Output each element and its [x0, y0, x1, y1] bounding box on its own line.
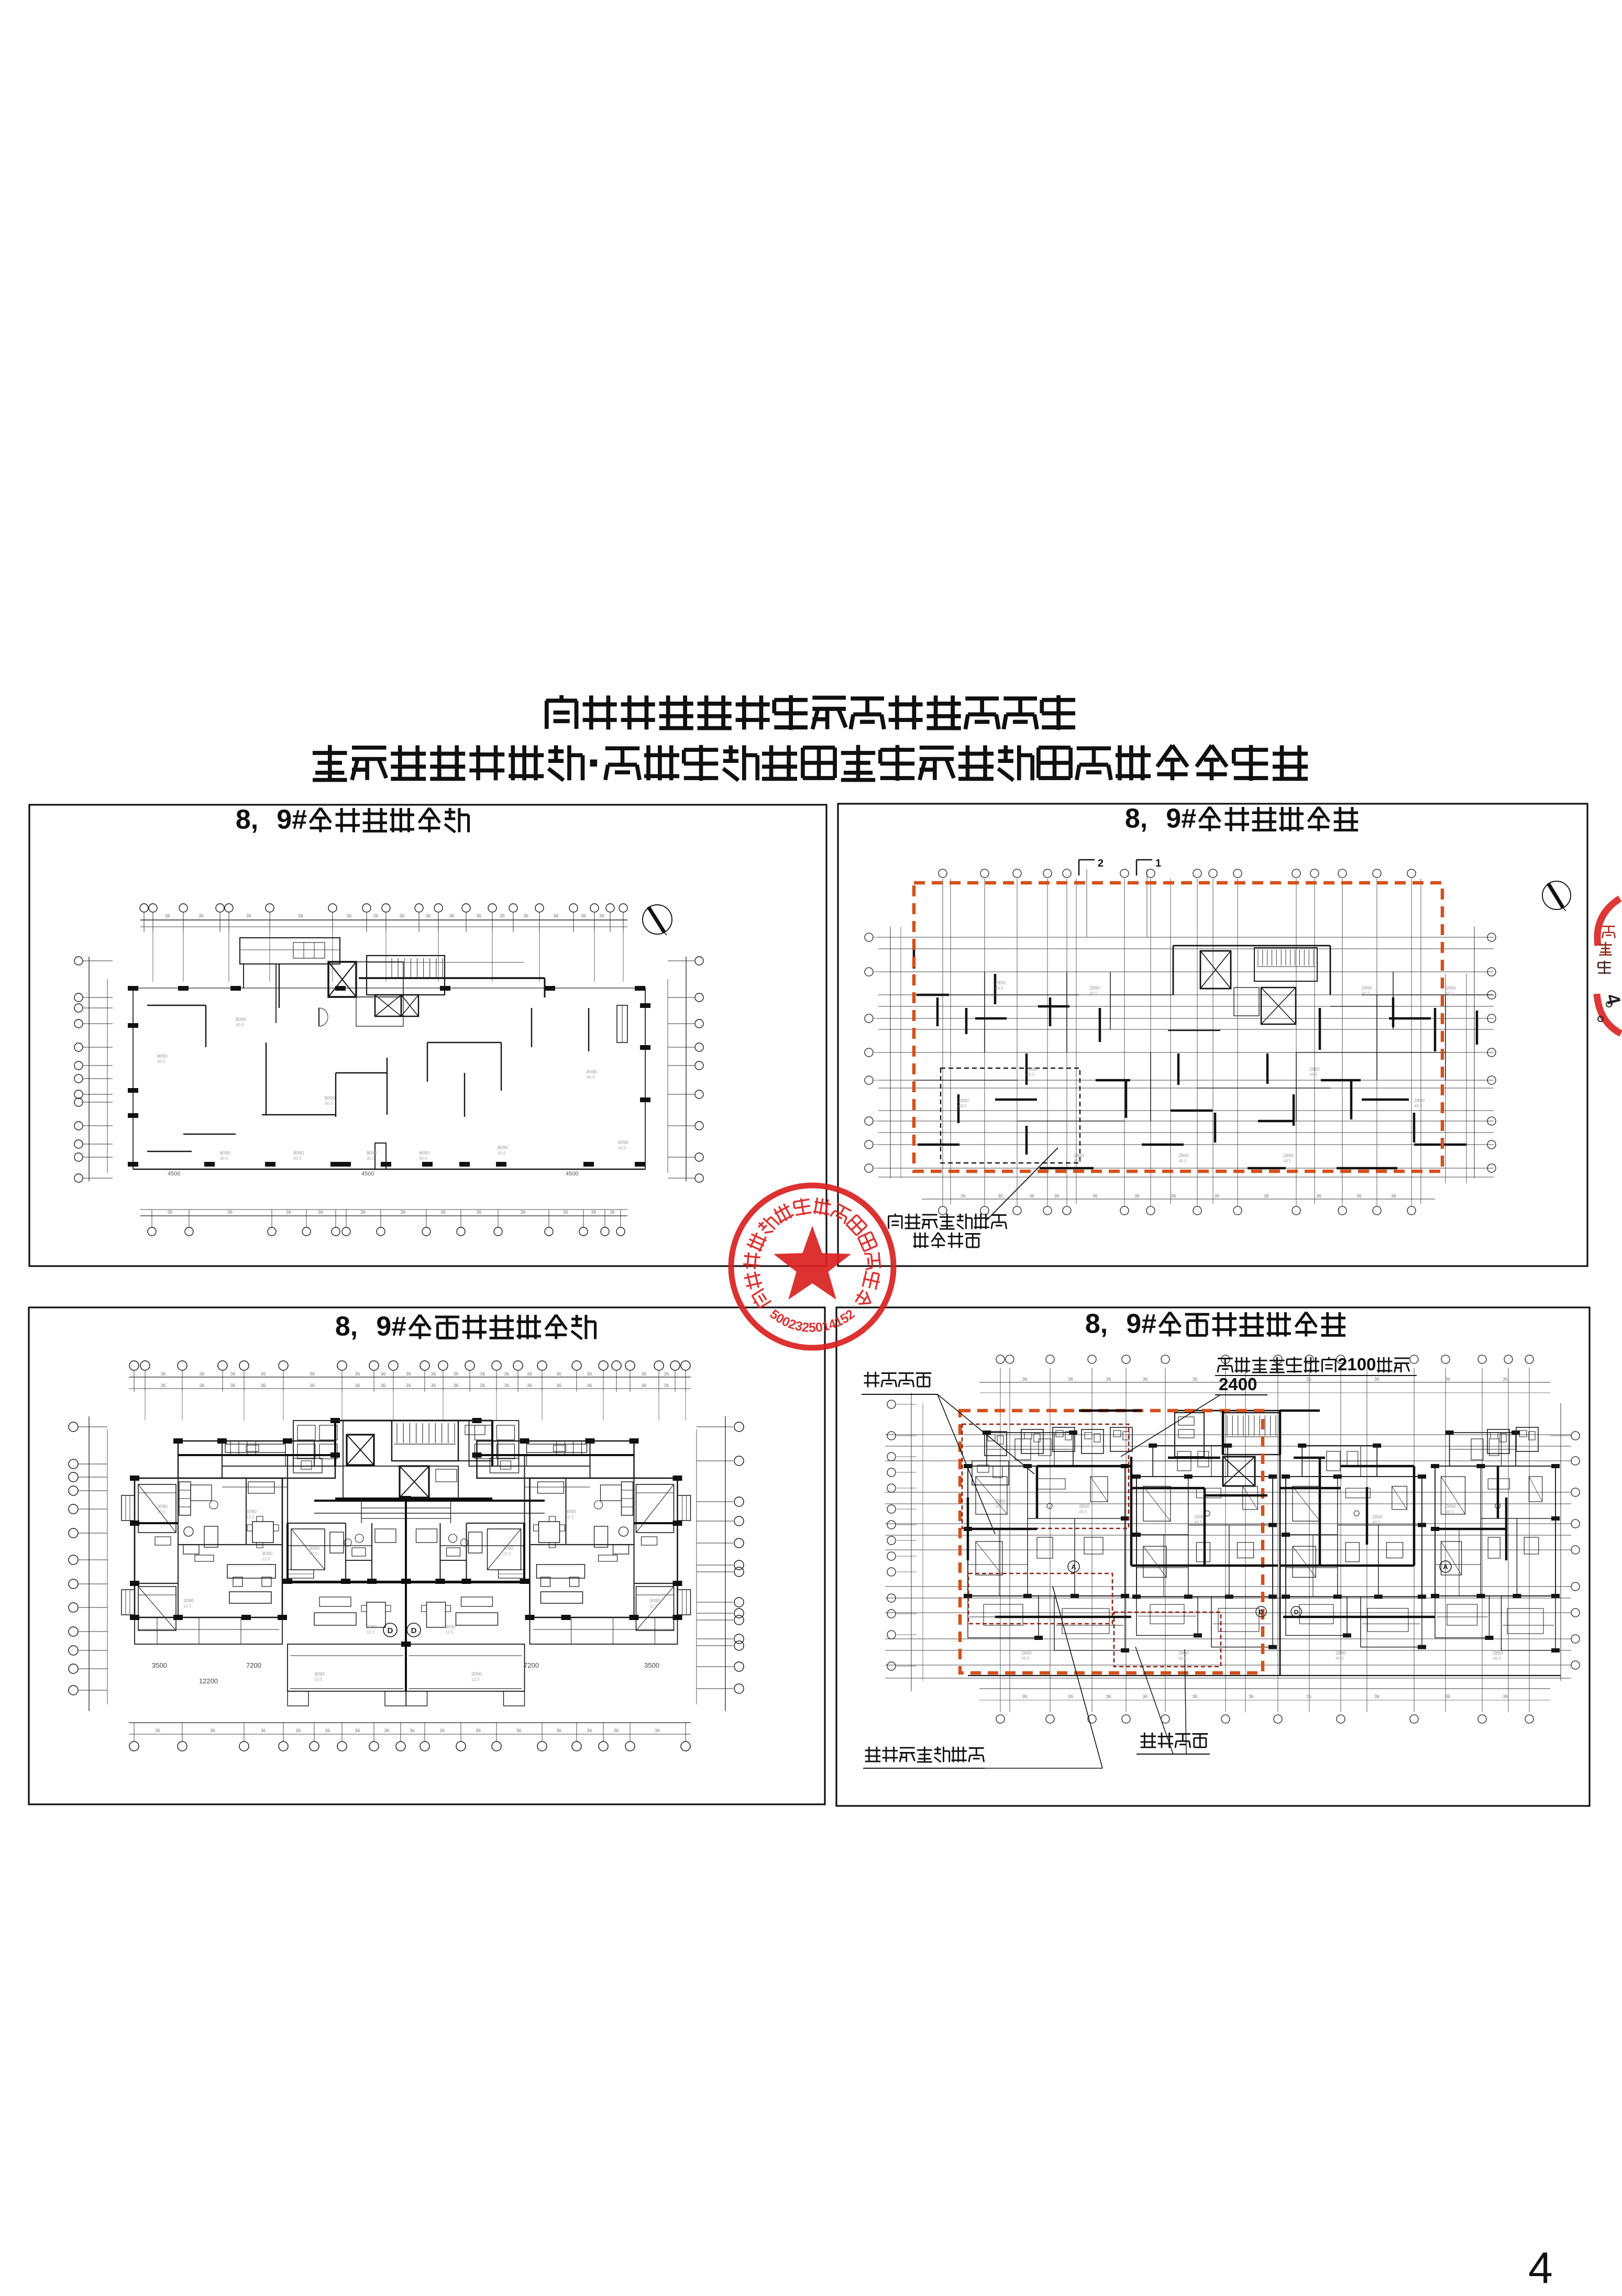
svg-text:2890: 2890: [1493, 1650, 1503, 1656]
svg-text:12.5: 12.5: [157, 1510, 165, 1514]
svg-text:8090: 8090: [419, 1150, 429, 1156]
svg-text:36: 36: [554, 913, 559, 918]
svg-text:36: 36: [1022, 1377, 1028, 1382]
svg-text:40.0: 40.0: [498, 1151, 506, 1156]
svg-text:2890: 2890: [958, 1098, 969, 1103]
svg-text:2890: 2890: [1414, 1098, 1425, 1103]
svg-text:36: 36: [1143, 1694, 1148, 1699]
svg-text:36: 36: [1093, 1193, 1098, 1199]
svg-text:36: 36: [454, 1383, 459, 1388]
svg-text:49.5: 49.5: [1194, 1520, 1202, 1525]
svg-text:3090: 3090: [471, 1671, 482, 1677]
svg-text:36: 36: [261, 1728, 266, 1733]
svg-text:8090: 8090: [618, 1140, 628, 1145]
svg-text:2: 2: [1338, 1355, 1347, 1374]
svg-text:4: 4: [1528, 2243, 1553, 2292]
svg-text:36: 36: [610, 1210, 615, 1215]
svg-text:3090: 3090: [649, 1598, 660, 1603]
svg-text:40.0: 40.0: [236, 1023, 244, 1027]
svg-text:40.0: 40.0: [419, 1156, 427, 1161]
svg-text:36: 36: [527, 1371, 532, 1377]
svg-text:12.5: 12.5: [262, 1557, 270, 1561]
svg-text:3090: 3090: [246, 1509, 257, 1514]
svg-text:36: 36: [1134, 1193, 1140, 1199]
svg-text:36: 36: [556, 1383, 561, 1388]
svg-text:36: 36: [521, 1210, 526, 1215]
svg-text:3090: 3090: [314, 1671, 325, 1677]
svg-text:0: 0: [1366, 1355, 1376, 1374]
svg-text:36: 36: [516, 1728, 522, 1733]
svg-text:A: A: [1443, 1563, 1448, 1571]
svg-text:36: 36: [556, 1371, 561, 1377]
svg-text:40.0: 40.0: [325, 1101, 333, 1106]
svg-text:8090: 8090: [220, 1150, 230, 1156]
svg-text:49.5: 49.5: [958, 1104, 967, 1108]
svg-text:36: 36: [664, 1383, 669, 1388]
svg-text:2890: 2890: [1309, 1067, 1320, 1072]
svg-text:36: 36: [1068, 1694, 1073, 1699]
svg-text:36: 36: [431, 1383, 436, 1388]
svg-text:12.5: 12.5: [183, 1604, 192, 1609]
svg-text:0: 0: [1248, 1374, 1257, 1394]
svg-text:#: #: [391, 1312, 406, 1342]
svg-text:2890: 2890: [1027, 1067, 1037, 1072]
svg-text:36: 36: [1106, 1377, 1111, 1382]
svg-text:3500: 3500: [152, 1661, 167, 1669]
svg-text:2: 2: [1219, 1374, 1228, 1394]
svg-text:49.5: 49.5: [1493, 1656, 1501, 1661]
svg-text:,: ,: [251, 805, 258, 835]
svg-text:2890: 2890: [1178, 1153, 1189, 1158]
svg-text:49.5: 49.5: [1074, 1159, 1082, 1163]
svg-text:36: 36: [1171, 1193, 1176, 1199]
svg-text:8: 8: [1085, 1309, 1100, 1339]
svg-text:12.5: 12.5: [471, 1677, 480, 1682]
svg-text:8090: 8090: [293, 1150, 304, 1156]
svg-text:36: 36: [587, 1383, 592, 1388]
svg-text:36: 36: [426, 913, 431, 918]
svg-text:36: 36: [230, 1383, 236, 1388]
svg-text:36: 36: [1022, 1694, 1028, 1699]
svg-text:36: 36: [310, 1371, 315, 1377]
svg-text:49.5: 49.5: [1021, 1656, 1030, 1661]
svg-text:8: 8: [335, 1312, 350, 1342]
svg-text:12.5: 12.5: [314, 1677, 323, 1682]
svg-text:49.5: 49.5: [1079, 1510, 1087, 1514]
svg-text:36: 36: [1068, 1377, 1073, 1382]
svg-text:36: 36: [1264, 1193, 1269, 1199]
svg-text:49.5: 49.5: [995, 1504, 1003, 1509]
svg-text:36: 36: [406, 1371, 411, 1377]
svg-text:49.5: 49.5: [1309, 1072, 1318, 1077]
svg-text:36: 36: [410, 1728, 415, 1733]
svg-text:36: 36: [1503, 1377, 1508, 1382]
svg-text:7200: 7200: [246, 1661, 261, 1669]
svg-text:36: 36: [355, 1371, 360, 1377]
svg-text:#: #: [1141, 1309, 1156, 1339]
svg-text:49.5: 49.5: [1372, 1520, 1381, 1525]
svg-text:36: 36: [360, 1210, 366, 1215]
svg-text:36: 36: [230, 1371, 236, 1377]
svg-text:12.5: 12.5: [649, 1604, 658, 1609]
svg-text:36: 36: [381, 1383, 386, 1388]
svg-text:36: 36: [261, 1371, 266, 1377]
svg-text:8090: 8090: [325, 1095, 335, 1101]
svg-text:36: 36: [1445, 1694, 1450, 1699]
svg-text:2890: 2890: [1372, 1514, 1383, 1519]
svg-text:,: ,: [1100, 1309, 1108, 1339]
svg-text:36: 36: [198, 913, 204, 918]
svg-text:36: 36: [527, 1383, 532, 1388]
svg-text:,: ,: [1140, 804, 1147, 834]
svg-text:36: 36: [642, 1371, 647, 1377]
svg-text:36: 36: [210, 1728, 215, 1733]
svg-text:36: 36: [1374, 1694, 1380, 1699]
svg-text:4: 4: [1228, 1374, 1238, 1394]
svg-text:2: 2: [1098, 858, 1104, 869]
svg-text:36: 36: [1249, 1694, 1254, 1699]
svg-text:49.5: 49.5: [1178, 1656, 1187, 1661]
svg-text:36: 36: [384, 1728, 390, 1733]
svg-text:40.0: 40.0: [618, 1146, 626, 1150]
svg-text:36: 36: [401, 1210, 406, 1215]
svg-text:2890: 2890: [995, 1499, 1006, 1504]
svg-text:36: 36: [664, 1371, 669, 1377]
svg-text:4500: 4500: [168, 1171, 180, 1177]
svg-text:0: 0: [1238, 1374, 1248, 1394]
svg-text:8090: 8090: [587, 1069, 597, 1074]
svg-text:36: 36: [355, 1728, 360, 1733]
svg-text:36: 36: [1143, 1377, 1148, 1382]
svg-text:36: 36: [480, 1371, 486, 1377]
svg-text:9: 9: [1126, 1309, 1141, 1339]
svg-text:36: 36: [381, 1371, 386, 1377]
svg-text:36: 36: [1391, 1193, 1396, 1199]
svg-text:36: 36: [449, 913, 455, 918]
svg-text:36: 36: [286, 1210, 291, 1215]
svg-text:2890: 2890: [1194, 1514, 1205, 1519]
svg-text:3090: 3090: [445, 1624, 456, 1629]
svg-text:36: 36: [599, 913, 604, 918]
svg-text:1: 1: [1347, 1355, 1356, 1374]
svg-text:D: D: [1259, 1609, 1264, 1616]
svg-text:36: 36: [1193, 1694, 1198, 1699]
svg-text:2890: 2890: [1336, 1650, 1346, 1656]
svg-text:9: 9: [376, 1312, 391, 1342]
svg-text:36: 36: [655, 1728, 660, 1733]
svg-text:36: 36: [161, 1371, 166, 1377]
svg-text:40.0: 40.0: [367, 1156, 375, 1161]
svg-text:36: 36: [440, 1728, 445, 1733]
svg-text:#: #: [292, 805, 307, 835]
svg-text:12.5: 12.5: [309, 1551, 317, 1556]
svg-text:3090: 3090: [367, 1624, 377, 1629]
svg-text:36: 36: [1316, 1193, 1321, 1199]
svg-text:36: 36: [1193, 1377, 1198, 1382]
svg-text:36: 36: [165, 913, 170, 918]
svg-text:36: 36: [1054, 1193, 1060, 1199]
svg-text:36: 36: [642, 1383, 647, 1388]
svg-text:36: 36: [477, 1210, 482, 1215]
svg-text:2890: 2890: [1362, 985, 1372, 991]
svg-text:12.5: 12.5: [246, 1515, 255, 1519]
svg-text:36: 36: [961, 1193, 966, 1199]
svg-text:36: 36: [476, 913, 481, 918]
svg-text:40.0: 40.0: [220, 1156, 228, 1161]
svg-text:36: 36: [523, 913, 528, 918]
svg-text:8090: 8090: [157, 1053, 168, 1059]
svg-text:12.5: 12.5: [566, 1515, 574, 1519]
svg-text:36: 36: [318, 1210, 323, 1215]
svg-text:#: #: [1181, 804, 1196, 834]
svg-text:36: 36: [1306, 1694, 1311, 1699]
svg-text:8090: 8090: [498, 1145, 508, 1150]
svg-text:36: 36: [563, 1210, 568, 1215]
svg-text:D: D: [411, 1626, 417, 1635]
svg-text:36: 36: [261, 1383, 266, 1388]
svg-text:0: 0: [1357, 1355, 1366, 1374]
svg-text:,: ,: [350, 1312, 358, 1342]
svg-text:36: 36: [591, 1210, 597, 1215]
svg-text:36: 36: [504, 1383, 510, 1388]
svg-text:2890: 2890: [1079, 1504, 1089, 1509]
svg-text:2890: 2890: [1089, 985, 1100, 991]
svg-text:8: 8: [236, 805, 251, 835]
svg-text:36: 36: [406, 1383, 411, 1388]
svg-text:12.5: 12.5: [367, 1630, 375, 1635]
svg-text:49.5: 49.5: [1362, 991, 1370, 996]
svg-text:3090: 3090: [157, 1504, 168, 1509]
svg-text:D: D: [1294, 1609, 1299, 1616]
svg-text:36: 36: [200, 1371, 205, 1377]
svg-text:36: 36: [1503, 1694, 1508, 1699]
svg-text:36: 36: [310, 1383, 315, 1388]
svg-text:36: 36: [1356, 1193, 1362, 1199]
svg-text:36: 36: [246, 913, 251, 918]
svg-text:36: 36: [298, 913, 303, 918]
svg-text:12.5: 12.5: [503, 1551, 511, 1556]
svg-text:40.0: 40.0: [293, 1156, 302, 1161]
svg-text:36: 36: [227, 1210, 233, 1215]
svg-text:7200: 7200: [524, 1661, 539, 1669]
svg-text:36: 36: [161, 1383, 166, 1388]
svg-text:36: 36: [1215, 1193, 1220, 1199]
svg-text:2890: 2890: [1178, 1650, 1189, 1656]
svg-text:36: 36: [476, 1728, 481, 1733]
svg-text:36: 36: [480, 1383, 486, 1388]
svg-text:36: 36: [373, 913, 379, 918]
svg-text:36: 36: [587, 1371, 592, 1377]
svg-text:36: 36: [998, 1193, 1003, 1199]
svg-text:49.5: 49.5: [1446, 1510, 1454, 1514]
svg-text:36: 36: [504, 1371, 510, 1377]
svg-text:36: 36: [556, 1728, 561, 1733]
svg-text:1: 1: [1155, 858, 1161, 869]
svg-text:4500: 4500: [566, 1171, 578, 1177]
svg-text:2890: 2890: [1021, 1650, 1032, 1656]
svg-text:49.5: 49.5: [1283, 1159, 1292, 1163]
svg-text:3500: 3500: [644, 1661, 659, 1669]
svg-text:36: 36: [1029, 1193, 1034, 1199]
svg-text:3090: 3090: [309, 1546, 319, 1551]
svg-text:3090: 3090: [183, 1598, 194, 1603]
svg-text:36: 36: [1374, 1377, 1380, 1382]
svg-text:36: 36: [200, 1383, 205, 1388]
svg-text:9: 9: [1166, 804, 1181, 834]
svg-text:36: 36: [155, 1728, 160, 1733]
svg-text:9: 9: [277, 805, 292, 835]
svg-text:36: 36: [1445, 1377, 1450, 1382]
svg-text:8090: 8090: [236, 1017, 246, 1022]
svg-text:8090: 8090: [367, 1150, 377, 1156]
svg-text:40.0: 40.0: [157, 1059, 165, 1064]
svg-text:36: 36: [296, 1728, 301, 1733]
svg-text:36: 36: [1306, 1377, 1311, 1382]
svg-text:36: 36: [431, 1371, 436, 1377]
svg-text:36: 36: [581, 913, 586, 918]
svg-text:36: 36: [454, 1371, 459, 1377]
svg-text:36: 36: [347, 913, 352, 918]
svg-text:A: A: [1071, 1563, 1076, 1571]
svg-text:40.0: 40.0: [587, 1075, 595, 1080]
svg-text:49.5: 49.5: [1414, 1104, 1422, 1108]
svg-text:49.5: 49.5: [1178, 1159, 1187, 1163]
svg-text:36: 36: [587, 1728, 592, 1733]
svg-text:2890: 2890: [1283, 1153, 1294, 1158]
svg-text:3090: 3090: [503, 1546, 513, 1551]
svg-text:D: D: [388, 1626, 393, 1635]
svg-text:36: 36: [325, 1728, 330, 1733]
svg-text:49.5: 49.5: [995, 986, 1003, 991]
svg-text:36: 36: [1106, 1694, 1111, 1699]
svg-text:49.5: 49.5: [1446, 991, 1454, 996]
svg-text:12200: 12200: [199, 1677, 218, 1685]
svg-text:49.5: 49.5: [1336, 1656, 1344, 1661]
svg-text:49.5: 49.5: [1027, 1072, 1035, 1077]
svg-text:36: 36: [168, 1210, 173, 1215]
svg-text:36: 36: [355, 1383, 360, 1388]
svg-text:2890: 2890: [1074, 1153, 1084, 1158]
svg-text:12.5: 12.5: [445, 1630, 454, 1635]
svg-text:36: 36: [614, 1728, 619, 1733]
svg-text:36: 36: [400, 913, 405, 918]
svg-text:4500: 4500: [361, 1171, 374, 1177]
svg-text:3090: 3090: [262, 1551, 272, 1556]
svg-text:8: 8: [1125, 804, 1140, 834]
svg-text:2890: 2890: [1446, 985, 1456, 991]
svg-text:36: 36: [440, 1210, 446, 1215]
svg-text:2890: 2890: [1446, 1504, 1456, 1509]
svg-text:49.5: 49.5: [1089, 991, 1098, 996]
svg-text:36: 36: [500, 913, 505, 918]
svg-text:3090: 3090: [566, 1509, 576, 1514]
svg-text:2890: 2890: [995, 980, 1006, 985]
svg-text:5002325014152: 5002325014152: [767, 1307, 857, 1335]
